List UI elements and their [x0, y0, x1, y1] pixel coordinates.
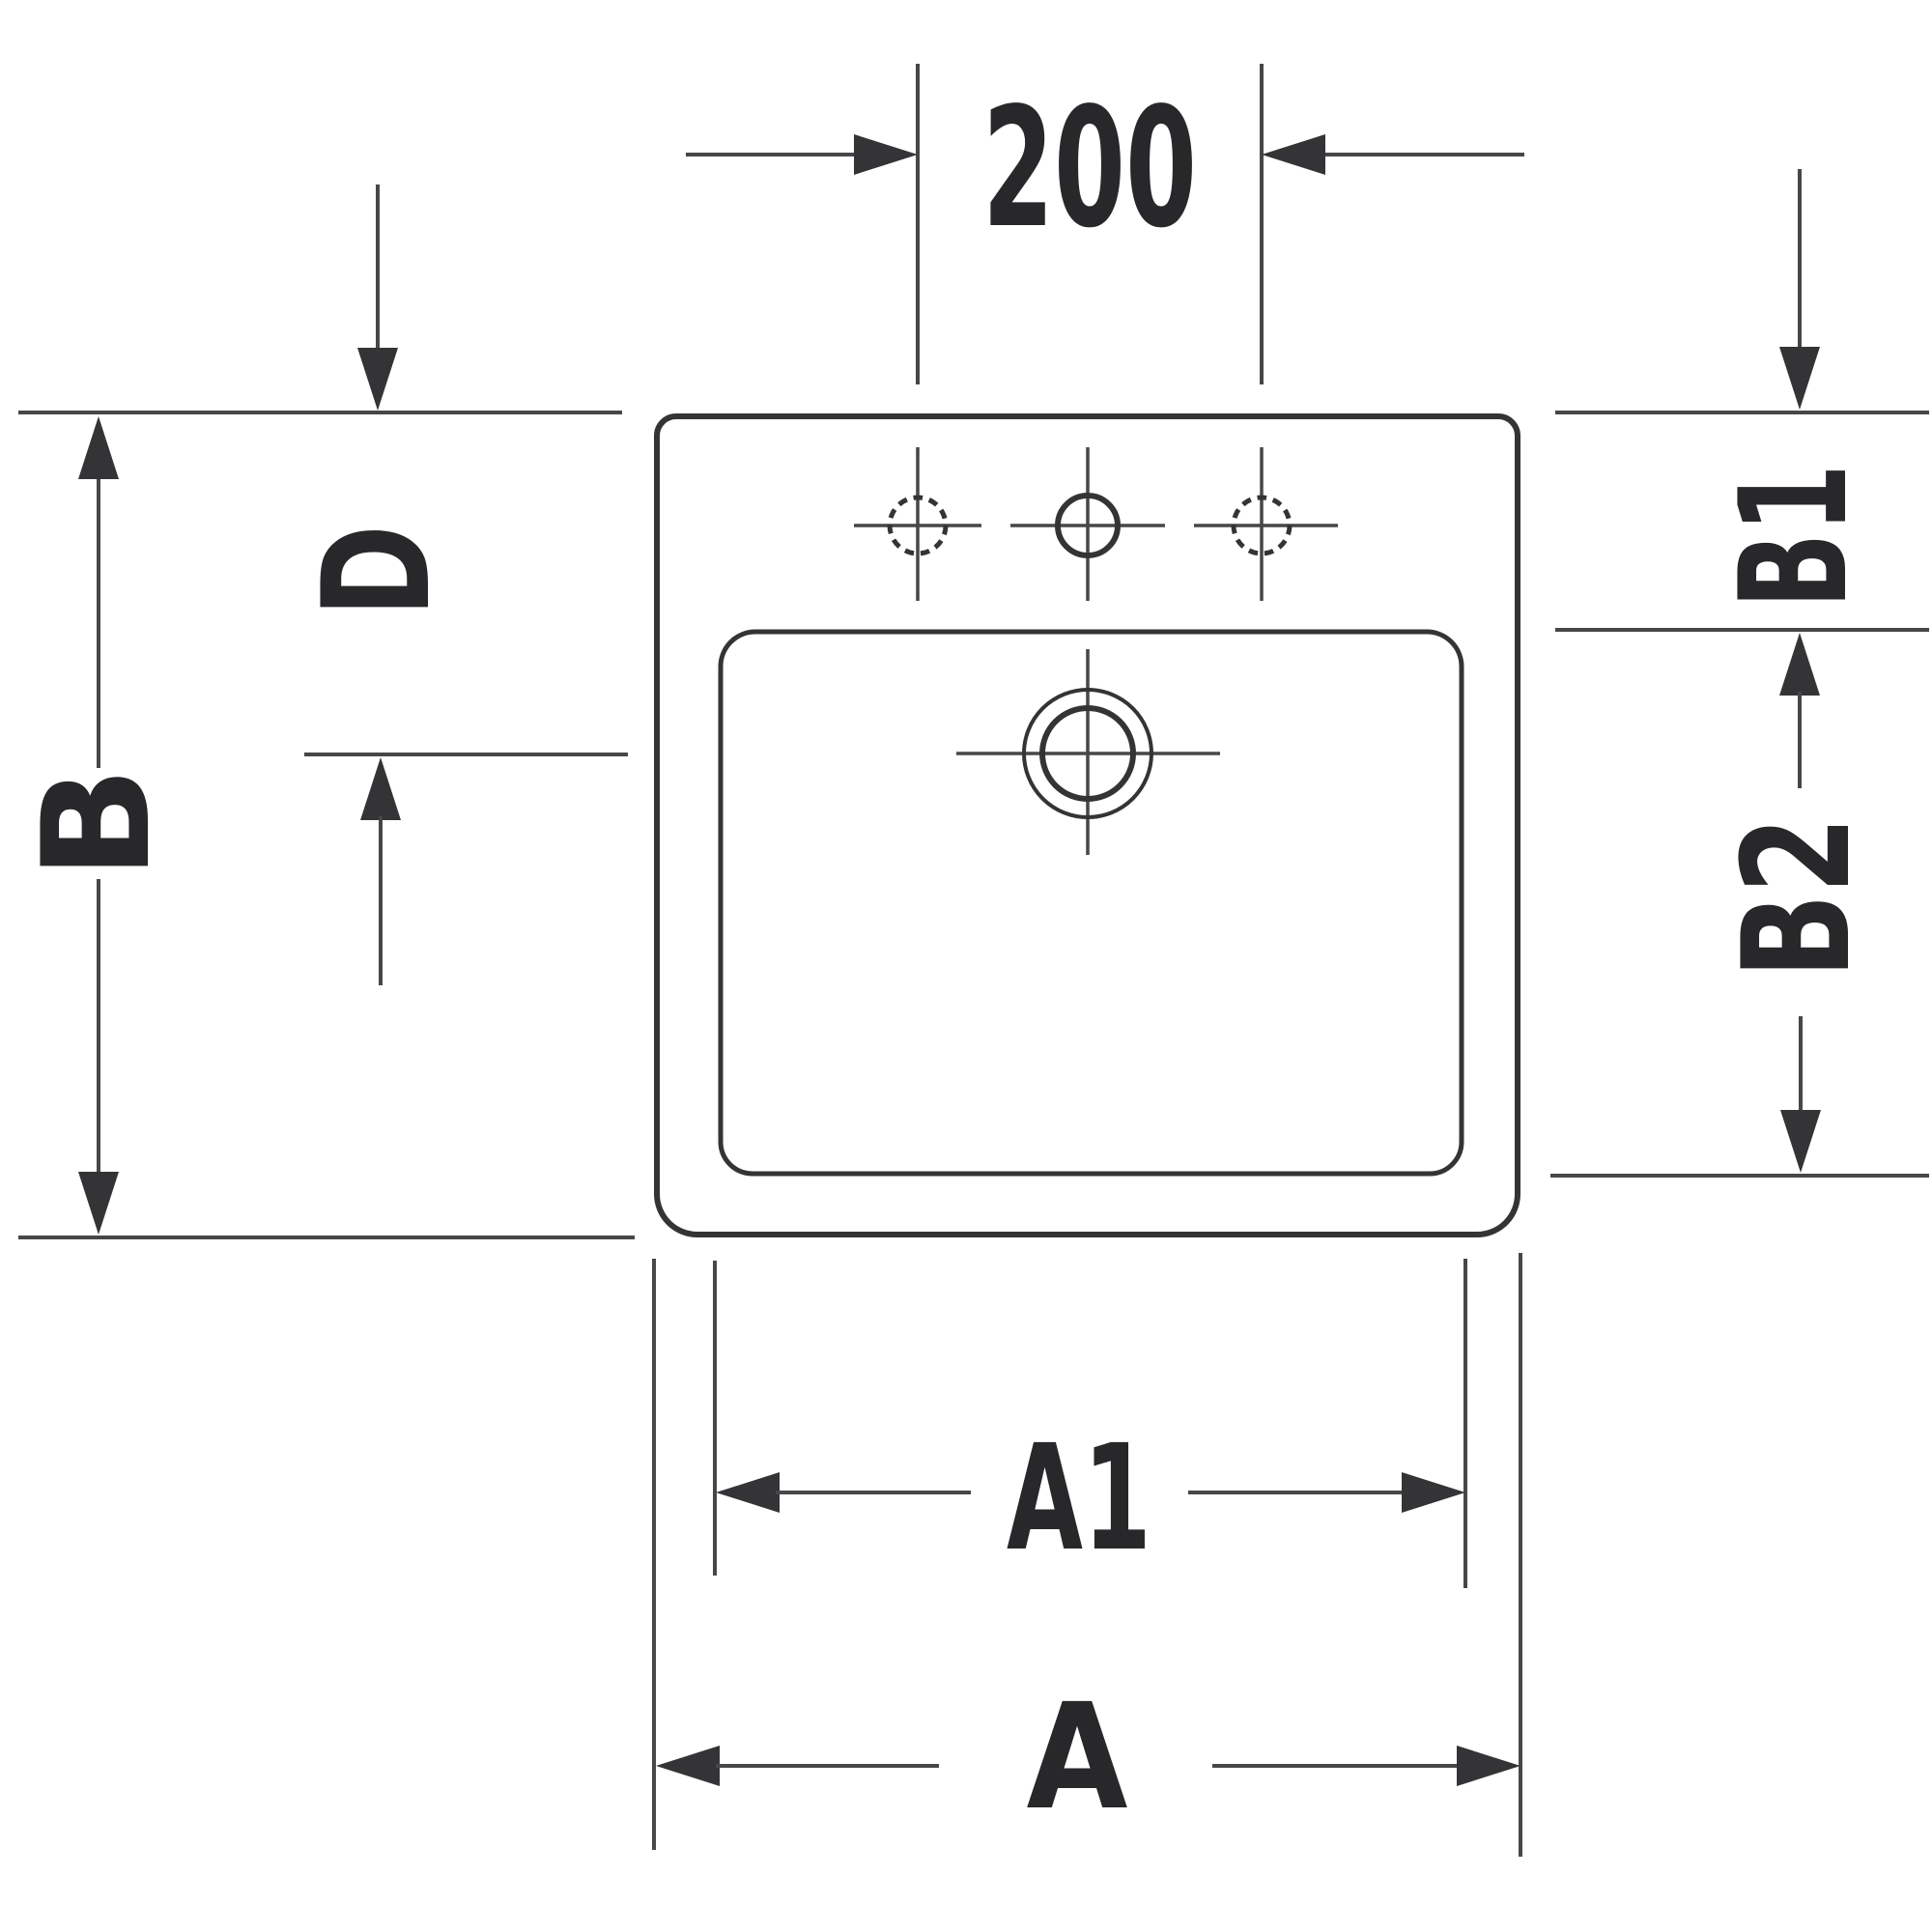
dim-rim-depth: B1 [1709, 169, 1881, 788]
dim-200-arrowhead-left [854, 134, 918, 175]
dim-a-arrowhead-left [656, 1746, 720, 1786]
dim-b-arrowhead-bottom [78, 1172, 119, 1235]
drawing-sheet: 200 B D [0, 0, 1932, 1932]
dim-d-arrowhead-bottom [360, 757, 401, 820]
dim-label-a: A [1027, 1672, 1128, 1842]
dim-b1-arrowhead-top [1779, 347, 1820, 410]
drain [956, 649, 1220, 855]
dim-label-d: D [292, 525, 464, 617]
dim-a-arrowhead-right [1457, 1746, 1520, 1786]
dim-label-a1: A1 [1007, 1413, 1151, 1583]
dim-label-200: 200 [982, 72, 1197, 265]
dim-d-arrowhead-top [357, 348, 398, 411]
dim-a1-arrowhead-right [1402, 1472, 1465, 1513]
tap-holes [854, 447, 1338, 601]
washbasin-technical-drawing: 200 B D [0, 0, 1932, 1932]
dim-label-b1: B1 [1709, 464, 1881, 609]
basin-inner-bowl [721, 632, 1462, 1174]
dim-a1-arrowhead-left [716, 1472, 780, 1513]
dim-b-arrowhead-top [78, 416, 119, 479]
dim-b2-arrowhead-bottom [1780, 1110, 1821, 1173]
dim-bowl-depth: B2 [1712, 816, 1884, 1173]
dim-label-b: B [12, 767, 184, 880]
dim-b1-arrowhead-bottom [1779, 633, 1820, 696]
dim-bowl-width: A1 [715, 1259, 1465, 1588]
dim-drain-setback: D [292, 185, 628, 985]
dim-200-arrowhead-right [1262, 134, 1325, 175]
dim-tap-hole-spacing: 200 [686, 64, 1524, 384]
dim-label-b2: B2 [1712, 816, 1884, 979]
